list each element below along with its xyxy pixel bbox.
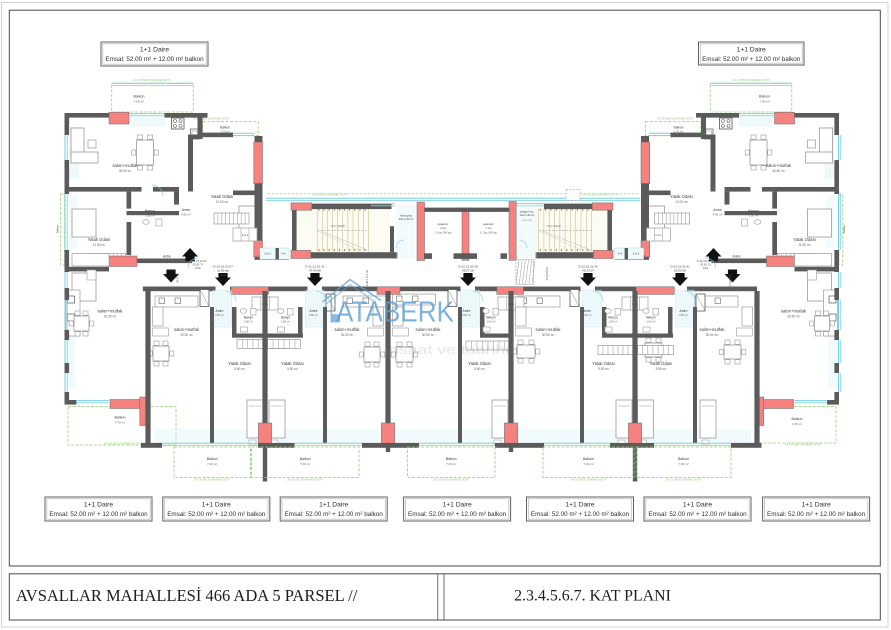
svg-text:4 kişi: 4 kişi — [486, 226, 492, 230]
svg-text:3.50 m²: 3.50 m² — [679, 313, 688, 317]
svg-text:3.50 m²: 3.50 m² — [582, 313, 591, 317]
svg-text:9.50 m²: 9.50 m² — [656, 367, 667, 371]
svg-text:11.34.03.04: 11.34.03.04 — [729, 274, 732, 288]
svg-text:30.50 m²: 30.50 m² — [772, 169, 785, 173]
svg-text:7.00 m²: 7.00 m² — [583, 462, 593, 466]
svg-text:24 CM BETONARME NOTF: 24 CM BETONARME NOTF — [433, 478, 469, 482]
svg-text:09.87.08: 09.87.08 — [177, 273, 180, 283]
svg-text:3.50 m²: 3.50 m² — [215, 313, 224, 317]
svg-text:7.00 m²: 7.00 m² — [300, 462, 310, 466]
svg-text:Emsal: 52.00 m² + 12.00 m² bal: Emsal: 52.00 m² + 12.00 m² balkon — [105, 56, 204, 63]
svg-text:yangın kor.: yangın kor. — [520, 210, 534, 214]
svg-text:Emsal: 52.00 m² + 12.00 m² bal: Emsal: 52.00 m² + 12.00 m² balkon — [648, 511, 747, 518]
svg-text:Yatak Odası: Yatak Odası — [228, 361, 251, 366]
svg-text:at 50 da: at 50 da — [217, 269, 228, 273]
svg-text:Emsal: 52.00 m² + 12.00 m² bal: Emsal: 52.00 m² + 12.00 m² balkon — [531, 511, 630, 518]
svg-text:Antre: Antre — [182, 208, 191, 212]
svg-text:Yatak Odası: Yatak Odası — [211, 194, 234, 199]
svg-text:AVSALLAR MAHALLESİ 466 ADA 5 P: AVSALLAR MAHALLESİ 466 ADA 5 PARSEL // — [16, 586, 358, 605]
svg-text:9.50 m²: 9.50 m² — [474, 367, 485, 371]
svg-text:9.50 m²: 9.50 m² — [598, 367, 609, 371]
svg-text:24 CM BETONARME NOTF: 24 CM BETONARME NOTF — [104, 441, 140, 445]
svg-text:Antre: Antre — [310, 309, 318, 313]
svg-text:1.80 m²: 1.80 m² — [486, 320, 495, 324]
svg-text:asansör: asansör — [438, 222, 449, 226]
svg-text:46.07.06: 46.07.06 — [462, 269, 474, 273]
svg-text:3.50 m²: 3.50 m² — [309, 313, 318, 317]
svg-text:1+1 Daire: 1+1 Daire — [683, 501, 712, 508]
svg-text:Yatak Odası: Yatak Odası — [793, 237, 816, 242]
svg-text:11.50 m²: 11.50 m² — [798, 243, 810, 247]
svg-text:1+1 Daire: 1+1 Daire — [802, 501, 831, 508]
svg-text:30.50 m²: 30.50 m² — [341, 333, 354, 337]
svg-text:24 CM BETONARME NOTF: 24 CM BETONARME NOTF — [733, 78, 771, 82]
svg-text:24 CM BETONARME NOTF: 24 CM BETONARME NOTF — [133, 78, 171, 82]
svg-text:24 CM BETONARME NOTF: 24 CM BETONARME NOTF — [287, 478, 323, 482]
svg-text:92.81.70: 92.81.70 — [700, 263, 711, 267]
svg-text:Balkon: Balkon — [583, 457, 594, 461]
svg-text:2+b k: 2+b k — [633, 252, 640, 256]
svg-text:Antre: Antre — [463, 309, 471, 313]
svg-text:Giriş: Giriş — [703, 266, 709, 270]
svg-text:D-16.23.34.43: D-16.23.34.43 — [697, 259, 715, 263]
svg-text:1.50 m²: 1.50 m² — [792, 422, 802, 426]
svg-text:Banyo: Banyo — [486, 316, 496, 320]
svg-text:Antre: Antre — [583, 309, 591, 313]
svg-text:30.50 m²: 30.50 m² — [119, 169, 132, 173]
svg-text:12.00 m²: 12.00 m² — [675, 200, 688, 204]
svg-text:insaat ve taahhüt: insaat ve taahhüt — [385, 343, 521, 357]
svg-text:salon+mutfak: salon+mutfak — [699, 327, 725, 332]
svg-text:Antre: Antre — [713, 208, 722, 212]
svg-text:24 CM BETONARME NOTF: 24 CM BETONARME NOTF — [665, 478, 701, 482]
svg-text:4+b: 4+b — [281, 252, 286, 256]
svg-text:7.00 m²: 7.00 m² — [759, 99, 769, 103]
svg-text:1+1 Daire: 1+1 Daire — [319, 501, 348, 508]
svg-text:Banyo: Banyo — [646, 316, 656, 320]
svg-text:Yatak Odası: Yatak Odası — [650, 361, 673, 366]
svg-text:salon+mutfak: salon+mutfak — [174, 327, 200, 332]
svg-text:30.50 m²: 30.50 m² — [422, 333, 435, 337]
svg-text:15.34.05.04: 15.34.05.04 — [546, 267, 549, 281]
svg-text:7.00 m²: 7.00 m² — [134, 99, 144, 103]
svg-text:24 CM BETONARME NOTF: 24 CM BETONARME NOTF — [312, 193, 347, 197]
svg-text:salon+mutfak: salon+mutfak — [112, 163, 138, 168]
svg-text:Emsal: 52.00 m² + 12.00 m² bal: Emsal: 52.00 m² + 12.00 m² balkon — [49, 511, 148, 518]
svg-text:2+b k: 2+b k — [655, 233, 662, 237]
svg-text:salon+mutfak: salon+mutfak — [766, 163, 792, 168]
svg-text:3.90 m²: 3.90 m² — [732, 259, 742, 263]
svg-text:Emsal: 52.00 m² + 12.00 m² bal: Emsal: 52.00 m² + 12.00 m² balkon — [767, 511, 866, 518]
svg-text:Emsal: 52.00 m² + 12.00 m² bal: Emsal: 52.00 m² + 12.00 m² balkon — [408, 511, 507, 518]
svg-text:bina giriş: bina giriş — [400, 214, 412, 218]
svg-text:2+b k: 2+b k — [242, 233, 249, 237]
svg-text:1+1 Daire: 1+1 Daire — [140, 46, 169, 53]
svg-text:holü 4.40 m²: holü 4.40 m² — [520, 213, 535, 217]
svg-text:Yatak Odası: Yatak Odası — [88, 237, 111, 242]
svg-text:2.3.4.5.6.7. KAT PLANI: 2.3.4.5.6.7. KAT PLANI — [514, 587, 671, 604]
svg-text:24 CM BETONARME NOTF: 24 CM BETONARME NOTF — [194, 478, 230, 482]
svg-text:49.34.07: 49.34.07 — [582, 269, 594, 273]
svg-text:Balkon: Balkon — [300, 457, 311, 461]
svg-text:30.50 m²: 30.50 m² — [542, 333, 555, 337]
svg-text:1.80 m²: 1.80 m² — [608, 320, 617, 324]
svg-text:Giriş: Giriş — [220, 273, 227, 277]
svg-text:7.00 m²: 7.00 m² — [446, 462, 456, 466]
svg-text:2+b k: 2+b k — [264, 252, 271, 256]
svg-text:salon+mutfak: salon+mutfak — [781, 309, 807, 314]
svg-text:1.80 m²: 1.80 m² — [646, 320, 655, 324]
svg-text:Yatak Odası: Yatak Odası — [670, 194, 693, 199]
svg-text:Balkon: Balkon — [842, 224, 846, 232]
svg-text:30.50 m²: 30.50 m² — [104, 315, 117, 319]
svg-text:Yatak Odası: Yatak Odası — [592, 361, 615, 366]
svg-text:Balkon: Balkon — [792, 417, 803, 421]
svg-text:1+1 Daire: 1+1 Daire — [443, 501, 472, 508]
svg-text:Balkon: Balkon — [115, 416, 126, 420]
svg-text:Antre: Antre — [680, 309, 688, 313]
svg-text:50.50.06: 50.50.06 — [674, 269, 686, 273]
svg-text:Yatak Odası: Yatak Odası — [468, 361, 491, 366]
svg-text:ATABERK: ATABERK — [336, 297, 455, 329]
svg-text:4.70 m²: 4.70 m² — [115, 420, 125, 424]
svg-text:24 CM BETONARME NOTF: 24 CM BETONARME NOTF — [657, 116, 693, 120]
svg-text:3.50 m²: 3.50 m² — [749, 214, 759, 218]
svg-text:1+1 Daire: 1+1 Daire — [84, 501, 113, 508]
svg-text:holü 4.30 m²: holü 4.30 m² — [399, 217, 414, 221]
svg-text:9.50 m²: 9.50 m² — [234, 367, 245, 371]
svg-text:Balkon: Balkon — [207, 457, 218, 461]
svg-text:30.50 m²: 30.50 m² — [787, 315, 800, 319]
svg-text:1+1 Daire: 1+1 Daire — [737, 46, 766, 53]
svg-text:Balkon: Balkon — [759, 95, 770, 99]
svg-text:4+b: 4+b — [618, 252, 623, 256]
svg-text:7.00 m²: 7.00 m² — [678, 462, 688, 466]
svg-text:salon+mutfak: salon+mutfak — [97, 309, 123, 314]
svg-text:4.90 m²: 4.90 m² — [181, 213, 191, 217]
svg-text:Emsal: 52.00 m² + 12.00 m² bal: Emsal: 52.00 m² + 12.00 m² balkon — [285, 511, 384, 518]
svg-text:(1 Say. 890 kg): (1 Say. 890 kg) — [435, 232, 452, 235]
svg-text:3.50 m²: 3.50 m² — [462, 313, 471, 317]
svg-text:7.00 m²: 7.00 m² — [207, 462, 217, 466]
svg-text:3.90 m²: 3.90 m² — [162, 259, 172, 263]
svg-text:3.50 m²: 3.50 m² — [145, 214, 155, 218]
svg-text:Balkon: Balkon — [446, 457, 457, 461]
svg-text:Emsal: 52.00 m² + 12.00 m² bal: Emsal: 52.00 m² + 12.00 m² balkon — [702, 56, 801, 63]
svg-text:N=7,26/28: N=7,26/28 — [331, 224, 345, 228]
svg-text:9.50 m²: 9.50 m² — [287, 367, 298, 371]
svg-text:24 CM BETONARME NOTF: 24 CM BETONARME NOTF — [570, 478, 606, 482]
svg-text:Antre: Antre — [216, 309, 224, 313]
svg-text:salon+mutfak: salon+mutfak — [535, 327, 561, 332]
svg-text:1.80 m²: 1.80 m² — [281, 320, 290, 324]
svg-text:1.80 m²: 1.80 m² — [244, 320, 253, 324]
svg-text:asansör: asansör — [483, 222, 494, 226]
svg-text:11.50 m²: 11.50 m² — [93, 243, 105, 247]
svg-text:1+1 Daire: 1+1 Daire — [202, 501, 231, 508]
svg-text:4.90 m²: 4.90 m² — [713, 213, 723, 217]
svg-text:Banyo: Banyo — [748, 209, 758, 213]
svg-text:Balkon: Balkon — [678, 457, 689, 461]
svg-text:1+1 Daire: 1+1 Daire — [565, 501, 594, 508]
svg-text:24 CM BETONARME NOTF: 24 CM BETONARME NOTF — [785, 443, 821, 447]
svg-text:Banyo: Banyo — [145, 209, 155, 213]
svg-text:Balkon: Balkon — [134, 95, 145, 99]
svg-text:12.00 m²: 12.00 m² — [216, 200, 229, 204]
svg-text:Giriş: Giriş — [195, 266, 201, 270]
svg-text:30.50 m²: 30.50 m² — [180, 333, 193, 337]
svg-text:Yatak Odası: Yatak Odası — [281, 361, 304, 366]
svg-text:Banyo: Banyo — [281, 316, 291, 320]
svg-text:Emsal: 52.00 m² + 12.00 m² bal: Emsal: 52.00 m² + 12.00 m² balkon — [167, 511, 266, 518]
svg-text:Banyo: Banyo — [244, 316, 254, 320]
svg-text:Balkon: Balkon — [56, 224, 60, 232]
svg-text:4 kişi: 4 kişi — [440, 226, 446, 230]
svg-text:0.48 3.70 1.30: 0.48 3.70 1.30 — [366, 269, 369, 286]
svg-text:24 CM BETONARME NOTF: 24 CM BETONARME NOTF — [582, 193, 617, 197]
svg-text:(1 Say. 890 kg): (1 Say. 890 kg) — [480, 232, 497, 235]
svg-text:Banyo: Banyo — [608, 316, 618, 320]
svg-text:N=7,26/28: N=7,26/28 — [547, 224, 561, 228]
svg-text:47.04.06: 47.04.06 — [309, 269, 321, 273]
svg-text:92.81.70: 92.81.70 — [193, 263, 204, 267]
svg-text:30.50 m²: 30.50 m² — [706, 333, 719, 337]
